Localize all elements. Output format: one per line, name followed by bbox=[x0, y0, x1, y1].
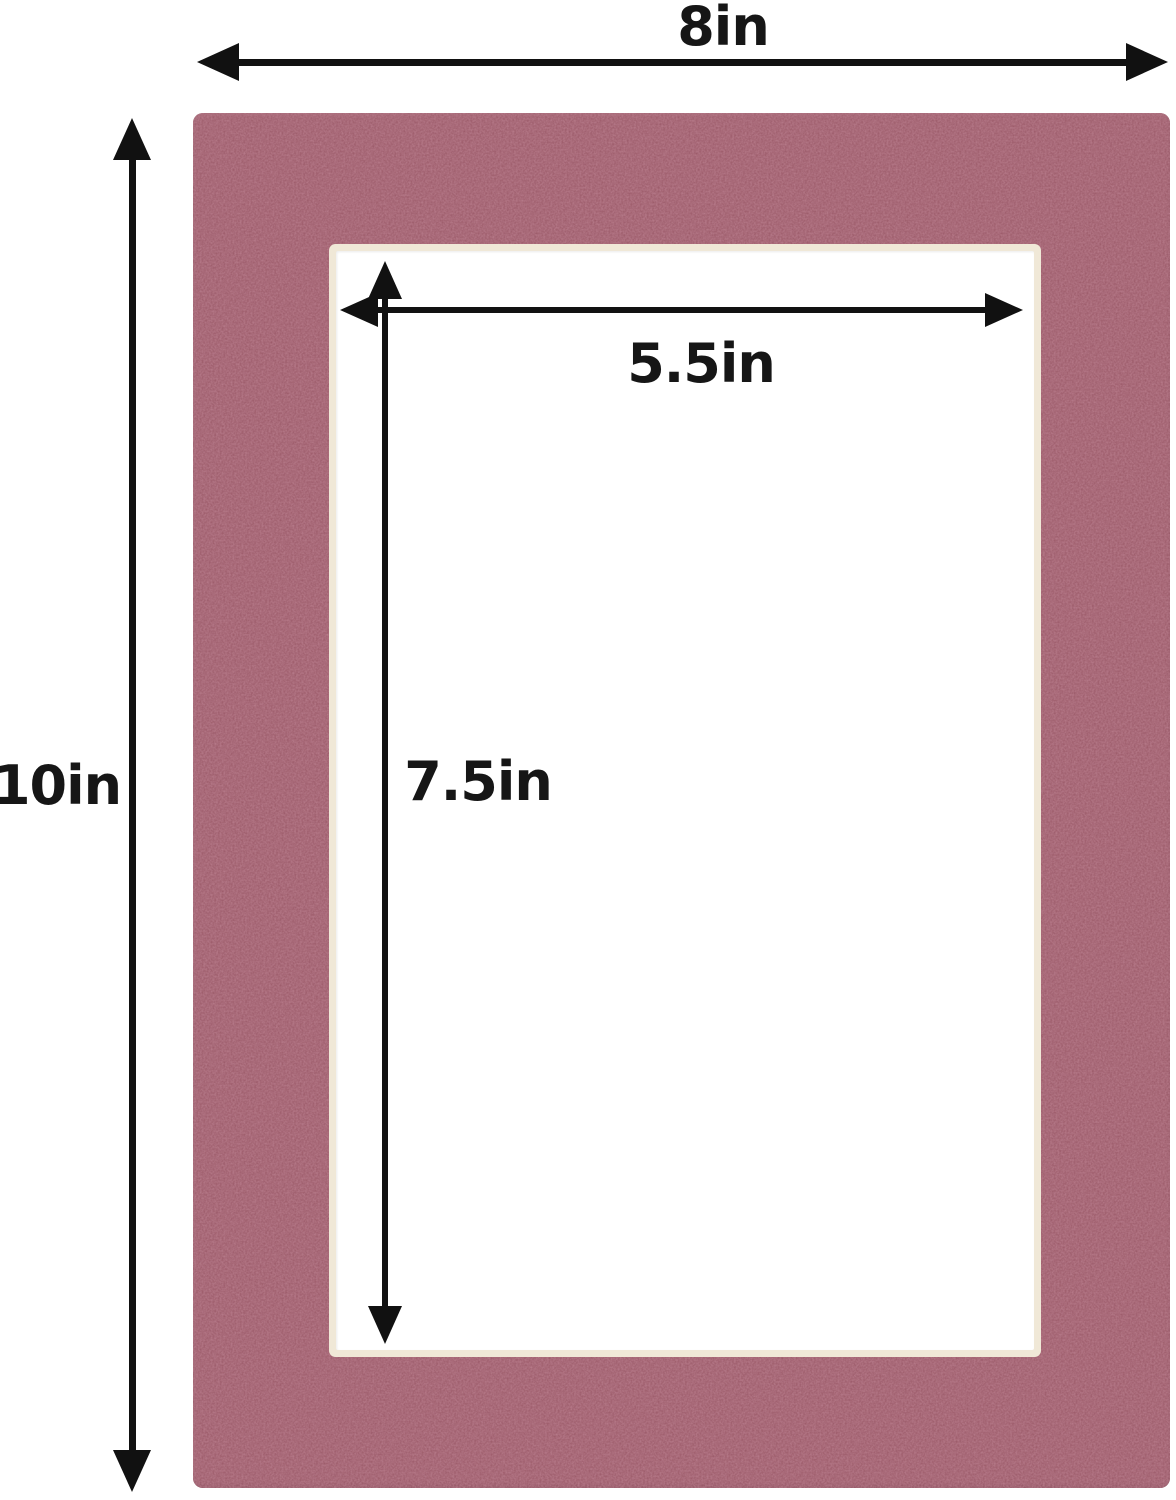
opening-width-arrow-line bbox=[372, 307, 990, 313]
opening-height-label: 7.5in bbox=[378, 755, 578, 809]
opening-width-label: 5.5in bbox=[601, 337, 801, 391]
outer-width-arrow-line bbox=[235, 59, 1130, 66]
arrowhead-down-icon bbox=[113, 1450, 151, 1492]
arrowhead-down-icon bbox=[368, 1306, 402, 1344]
outer-height-label: 10in bbox=[0, 759, 157, 813]
arrowhead-right-icon bbox=[985, 293, 1023, 327]
arrowhead-up-icon bbox=[368, 261, 402, 299]
arrowhead-left-icon bbox=[197, 43, 239, 81]
outer-width-label: 8in bbox=[623, 0, 823, 54]
arrowhead-up-icon bbox=[113, 118, 151, 160]
product-dimension-diagram: 8in 10in 5.5in 7.5in bbox=[0, 0, 1176, 1500]
arrowhead-right-icon bbox=[1126, 43, 1168, 81]
